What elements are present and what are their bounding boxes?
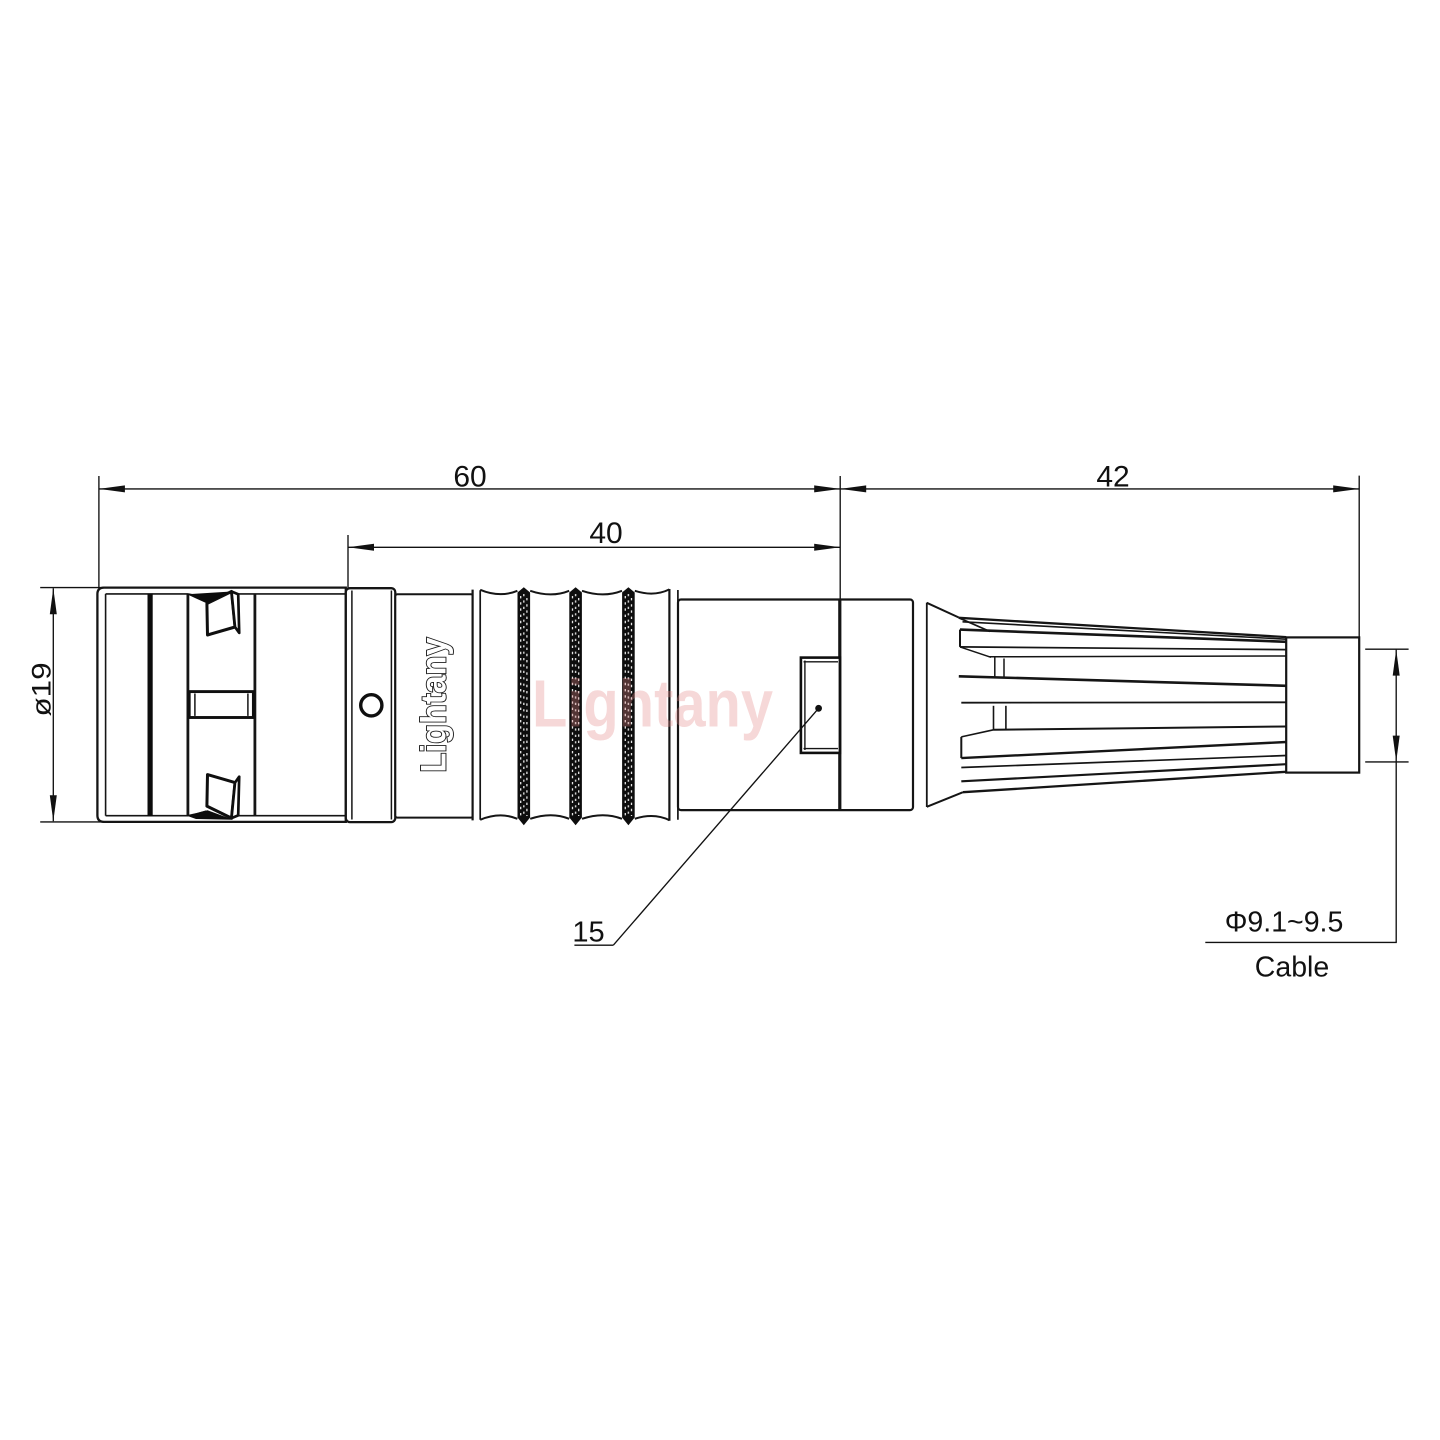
svg-text:Cable: Cable (1255, 951, 1329, 983)
svg-text:ø19: ø19 (27, 663, 57, 717)
svg-text:Φ9.1~9.5: Φ9.1~9.5 (1225, 907, 1344, 939)
svg-text:42: 42 (1096, 460, 1129, 493)
svg-text:60: 60 (453, 461, 486, 494)
svg-text:Lightany: Lightany (414, 637, 454, 772)
svg-text:Lightany: Lightany (532, 666, 773, 741)
svg-text:15: 15 (572, 917, 604, 949)
svg-text:40: 40 (589, 517, 622, 550)
